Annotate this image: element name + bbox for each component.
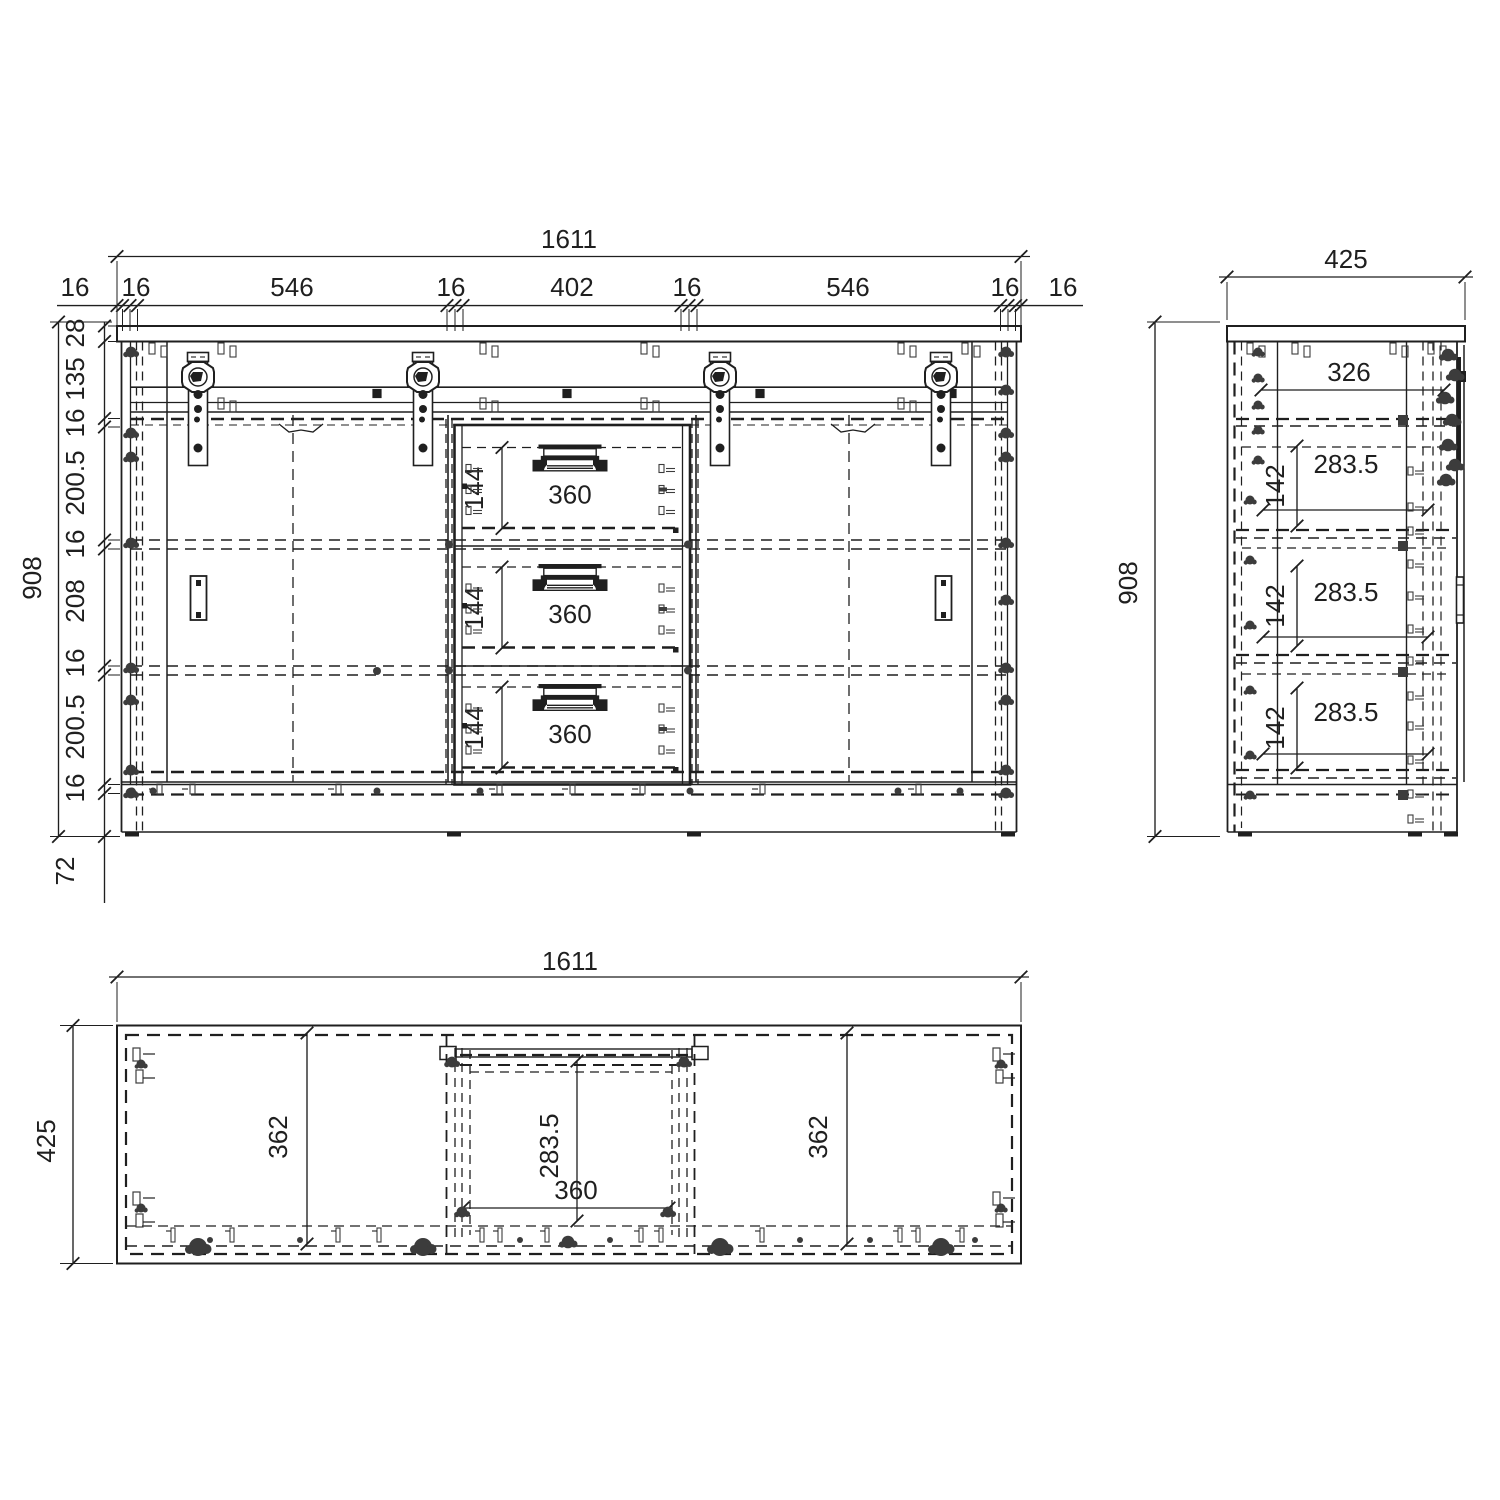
svg-text:16: 16	[437, 272, 466, 302]
svg-text:16: 16	[1049, 272, 1078, 302]
svg-text:135: 135	[60, 357, 90, 400]
svg-text:360: 360	[548, 599, 591, 629]
svg-text:1611: 1611	[542, 946, 598, 976]
svg-text:28: 28	[60, 319, 90, 348]
svg-text:283.5: 283.5	[1313, 577, 1378, 607]
svg-text:546: 546	[826, 272, 869, 302]
svg-text:142: 142	[1260, 706, 1290, 749]
svg-text:72: 72	[50, 857, 80, 886]
svg-text:425: 425	[31, 1119, 61, 1162]
svg-text:142: 142	[1260, 584, 1290, 627]
svg-text:546: 546	[270, 272, 313, 302]
svg-text:402: 402	[550, 272, 593, 302]
svg-text:908: 908	[17, 556, 47, 599]
svg-text:208: 208	[60, 579, 90, 622]
svg-text:283.5: 283.5	[1313, 697, 1378, 727]
svg-text:16: 16	[60, 409, 90, 438]
svg-text:283.5: 283.5	[534, 1113, 564, 1178]
svg-text:16: 16	[122, 272, 151, 302]
svg-text:908: 908	[1113, 561, 1143, 604]
svg-text:360: 360	[548, 719, 591, 749]
svg-text:16: 16	[60, 530, 90, 559]
svg-text:326: 326	[1327, 357, 1370, 387]
svg-text:16: 16	[60, 649, 90, 678]
svg-text:16: 16	[60, 774, 90, 803]
svg-text:142: 142	[1260, 464, 1290, 507]
svg-text:200.5: 200.5	[60, 450, 90, 515]
svg-text:1611: 1611	[541, 224, 597, 254]
svg-text:425: 425	[1324, 244, 1367, 274]
svg-text:16: 16	[61, 272, 90, 302]
svg-text:16: 16	[673, 272, 702, 302]
svg-text:360: 360	[548, 480, 591, 510]
svg-text:283.5: 283.5	[1313, 449, 1378, 479]
svg-text:200.5: 200.5	[60, 694, 90, 759]
svg-text:16: 16	[991, 272, 1020, 302]
svg-text:362: 362	[803, 1115, 833, 1158]
svg-text:362: 362	[263, 1115, 293, 1158]
svg-text:360: 360	[554, 1175, 597, 1205]
